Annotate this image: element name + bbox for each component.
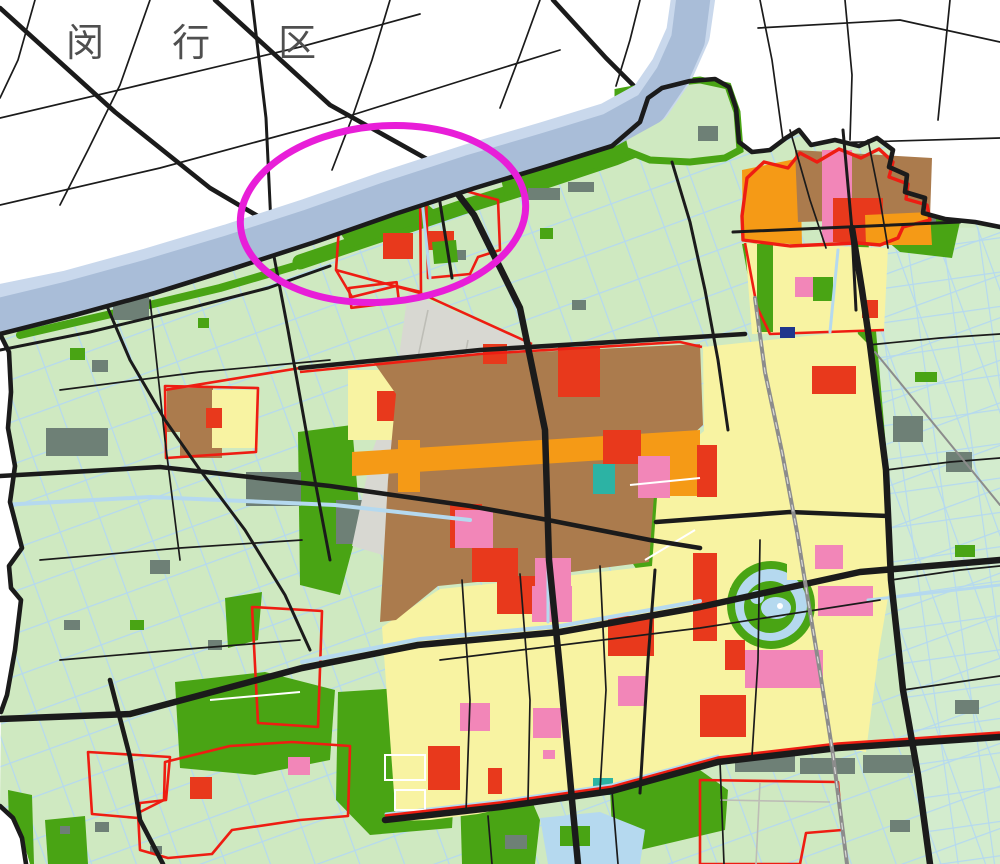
teal-zone-1 <box>593 464 615 494</box>
planning-map: 闵 行 区 <box>0 0 1000 864</box>
district-label: 闵 行 区 <box>66 21 344 65</box>
blue-facility <box>780 327 795 338</box>
map-canvas: 闵 行 区 <box>0 0 1000 864</box>
